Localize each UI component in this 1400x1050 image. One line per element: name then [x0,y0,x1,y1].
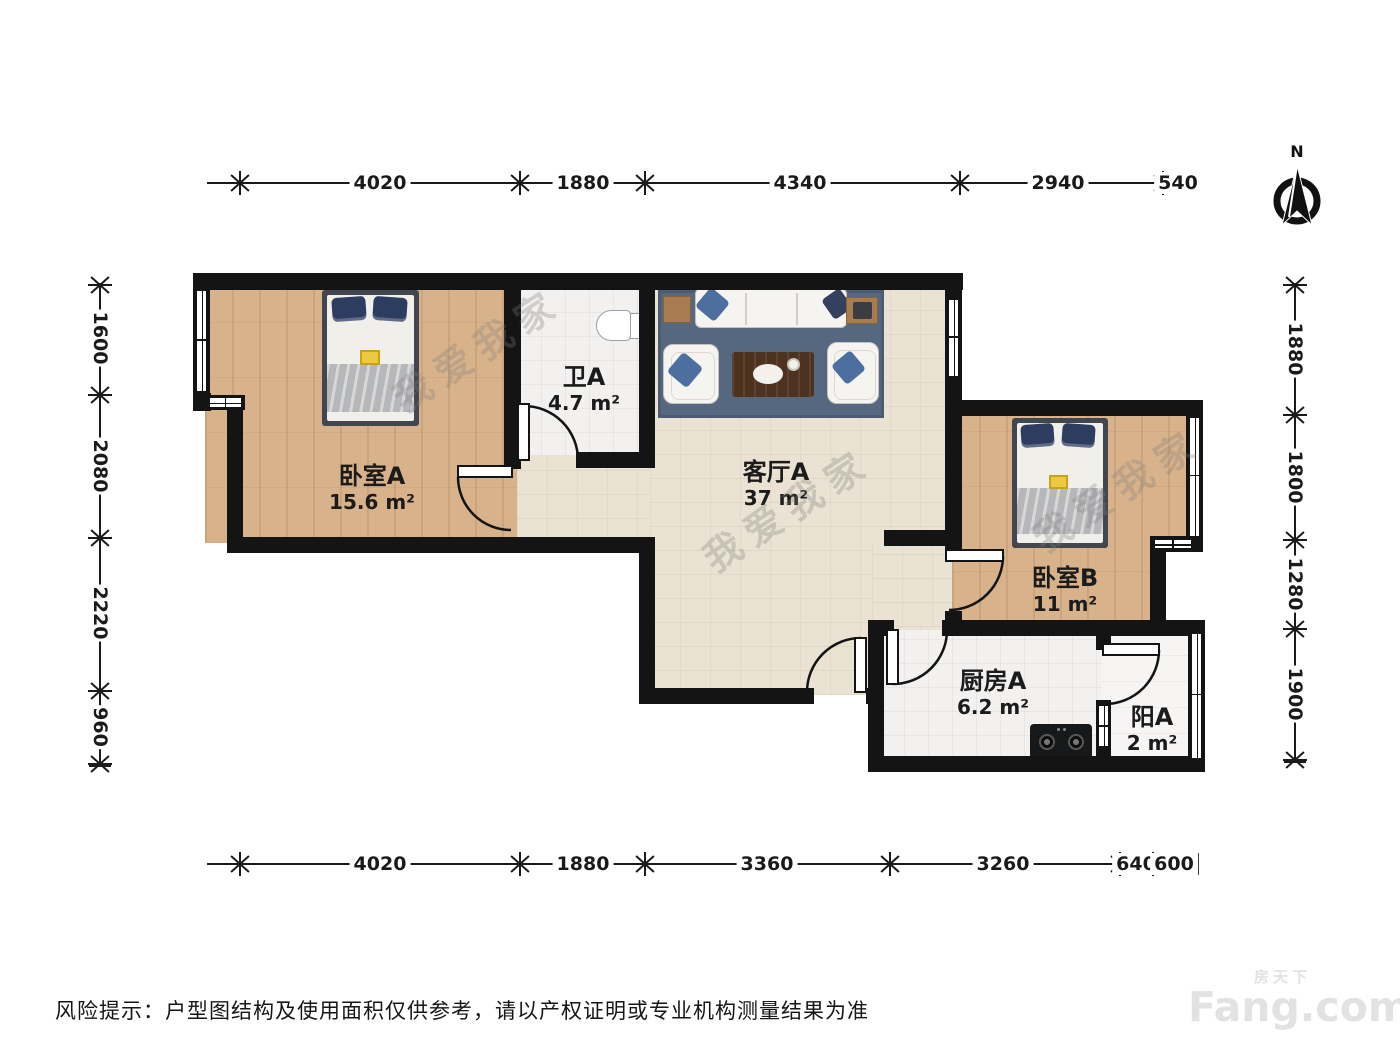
dimension-label: 960 [89,705,111,749]
dimension-tick [632,170,658,196]
dimension-label: 1600 [89,310,111,367]
wall [1150,536,1166,636]
wall [868,620,894,636]
hallway-floor [517,455,650,543]
dimension-tick [1282,747,1308,773]
dimension-label: 4020 [350,172,411,194]
dimension-label: 4020 [350,853,411,875]
room-area: 4.7 m² [504,390,664,416]
room-name: 卧室B [985,565,1145,591]
dimension-label: 540 [1154,172,1202,194]
corridor-floor [872,543,952,627]
dimension-tick [1282,402,1308,428]
dimension-tick [87,525,113,551]
room-area: 15.6 m² [292,489,452,515]
room-label-bathroomA: 卫A 4.7 m² [504,364,664,416]
window-icon [196,290,207,392]
room-name: 卧室A [292,463,452,489]
fang-logo-en: Fang.com [1188,987,1400,1028]
side-table-left [663,296,691,323]
dimension-label: 4340 [770,172,831,194]
room-label-bedroomB: 卧室B 11 m² [985,565,1145,617]
dimension-label: 1880 [553,172,614,194]
risk-disclaimer: 风险提示：户型图结构及使用面积仅供参考，请以产权证明或专业机构测量结果为准 [55,995,869,1025]
dimension-tick [1282,272,1308,298]
window-icon [209,397,242,408]
wall [884,530,946,546]
dimension-tick [1282,616,1308,642]
dimension-tick [507,851,533,877]
dimension-tick [87,272,113,298]
fang-logo: 房天下 Fang.com [1188,970,1400,1028]
window-icon [1154,539,1192,549]
wall [868,756,1205,772]
room-label-balconyA: 阳A 2 m² [1072,704,1232,756]
dimension-label: 1280 [1284,556,1306,613]
room-name: 厨房A [913,668,1073,694]
wall [945,400,1203,416]
dimension-label: 2940 [1028,172,1089,194]
dimension-label: 2220 [89,585,111,642]
dimension-label: 3260 [973,853,1034,875]
side-table-right [846,297,878,324]
wall [639,537,655,704]
floorplan-page: 卧室A 15.6 m² 卫A 4.7 m² 客厅A 37 m² 卧室B 11 m… [0,0,1400,1050]
wall [193,273,963,290]
dimension-label: 1880 [1284,321,1306,378]
dimension-tick [227,170,253,196]
room-area: 6.2 m² [913,694,1073,720]
room-name: 阳A [1072,704,1232,730]
wall [868,620,884,772]
dimension-tick [877,851,903,877]
dimension-tick [87,751,113,777]
wall [1096,636,1111,650]
dimension-tick [87,678,113,704]
dimension-label: 3360 [737,853,798,875]
dimension-tick [1282,527,1308,553]
dimension-label: 1880 [553,853,614,875]
wall [639,688,814,704]
room-label-bedroomA: 卧室A 15.6 m² [292,463,452,515]
room-area: 2 m² [1072,730,1232,756]
room-label-kitchenA: 厨房A 6.2 m² [913,668,1073,720]
dimension-tick [227,851,253,877]
dimension-tick [87,382,113,408]
room-area: 11 m² [985,591,1145,617]
dimension-label: 600 [1150,853,1198,875]
toilet [596,310,643,342]
wall [227,537,655,553]
dimension-label: 1800 [1284,449,1306,506]
compass-icon [1265,159,1329,239]
room-name: 卫A [504,364,664,390]
dimension-label: 1900 [1284,666,1306,723]
wall [945,611,962,636]
dimension-tick [632,851,658,877]
dimension-tick [947,170,973,196]
wall [227,397,243,553]
window-icon [948,299,959,377]
dimension-tick [507,170,533,196]
coffee-table [732,352,814,397]
dimension-label: 2080 [89,438,111,495]
compass: N [1262,142,1332,243]
